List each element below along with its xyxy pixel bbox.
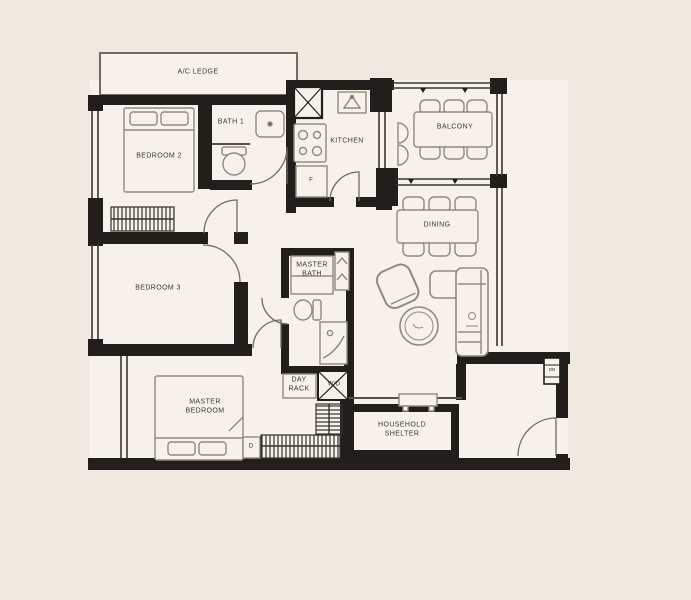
- linen-shelf: [335, 252, 349, 290]
- toilet-bowl-icon: [223, 153, 245, 175]
- floorplan-drawing: [0, 0, 691, 600]
- label-ac-ledge: A/C LEDGE: [178, 69, 219, 78]
- bed-master: [155, 376, 243, 460]
- kitchen-shaft: [294, 87, 322, 118]
- floorplan-canvas: A/C LEDGE BATH 1 BEDROOM 2 KITCHEN F BAL…: [0, 0, 691, 600]
- label-bedroom-2: BEDROOM 2: [136, 153, 182, 162]
- label-washer-dryer: W/D: [328, 381, 340, 389]
- label-db: DB: [549, 367, 555, 373]
- label-master-bath: MASTER BATH: [290, 261, 334, 279]
- label-dresser: D: [249, 443, 254, 451]
- coffee-table: [400, 307, 438, 345]
- label-day-rack: DAY RACK: [283, 376, 315, 394]
- label-dining: DINING: [424, 222, 451, 231]
- bed-bedroom-2: [124, 108, 194, 192]
- label-bath-1: BATH 1: [218, 119, 244, 128]
- kitchen-hob-icon: [294, 124, 326, 162]
- master-bath-shower: [320, 322, 347, 364]
- wardrobe-bedroom-2: [111, 207, 174, 231]
- master-bath-toilet: [294, 300, 321, 320]
- label-household-shelter: HOUSEHOLD SHELTER: [365, 421, 439, 439]
- kitchen-sink-icon: [338, 92, 366, 113]
- label-fridge: F: [309, 177, 313, 185]
- label-bedroom-3: BEDROOM 3: [135, 285, 181, 294]
- label-balcony: BALCONY: [437, 124, 473, 133]
- label-kitchen: KITCHEN: [330, 138, 364, 147]
- label-master-bedroom: MASTER BEDROOM: [175, 398, 235, 416]
